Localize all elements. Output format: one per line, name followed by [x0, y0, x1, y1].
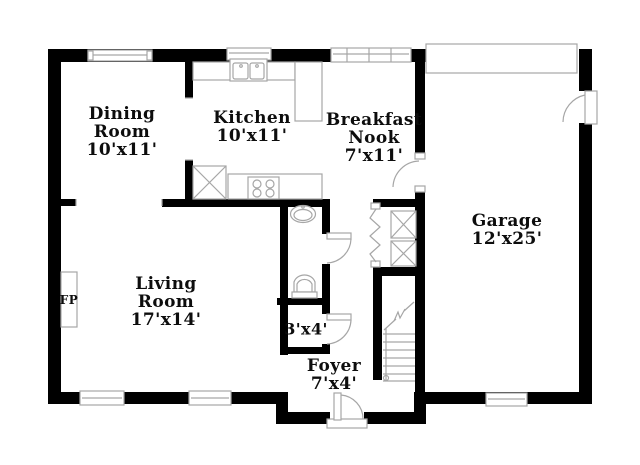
dining-window-icon [88, 50, 152, 61]
room-name: Living Room [128, 275, 204, 311]
bifold-door-icon [370, 203, 380, 267]
room-dims: 7'x4' [289, 375, 379, 393]
room-name: Kitchen [197, 109, 307, 127]
room-label-foyer: Foyer 7'x4' [289, 357, 379, 393]
floor-plan: Dining Room 10'x11' Kitchen 10'x11' Brea… [0, 0, 640, 465]
bathroom-fixtures [291, 206, 318, 299]
room-label-kitchen: Kitchen 10'x11' [197, 109, 307, 145]
room-dims: 17'x14' [128, 311, 204, 329]
living-window-left-icon [80, 391, 124, 405]
bathroom-door-icon [327, 233, 351, 263]
kitchen-sink-icon [230, 59, 267, 81]
room-name: Garage [452, 212, 562, 230]
room-label-garage: Garage 12'x25' [452, 212, 562, 248]
kitchen-window-icon [227, 48, 271, 60]
garage-door-icon [426, 44, 577, 73]
staircase-icon [383, 302, 415, 381]
front-door-icon [327, 393, 367, 428]
garage-window-icon [486, 393, 527, 406]
stove-icon [248, 177, 279, 199]
room-dims: 12'x25' [452, 230, 562, 248]
breakfast-window-icon [331, 48, 411, 62]
room-dims: 10'x11' [197, 127, 307, 145]
room-label-living-room: Living Room 17'x14' [128, 275, 204, 329]
room-name: Foyer [289, 357, 379, 375]
pantry-icon [193, 166, 226, 199]
room-name: Dining Room [80, 105, 164, 141]
room-label-breakfast-nook: Breakfast Nook 7'x11' [324, 111, 424, 165]
room-label-closet: 3'x4' [276, 322, 336, 339]
fireplace-label: FP [60, 293, 79, 307]
room-name: Breakfast Nook [324, 111, 424, 147]
room-dims: 3'x4' [276, 322, 336, 339]
room-dims: 7'x11' [324, 147, 424, 165]
living-window-right-icon [189, 391, 231, 405]
toilet-icon [292, 275, 317, 298]
garage-side-door-icon [563, 91, 597, 124]
room-label-dining: Dining Room 10'x11' [80, 105, 164, 159]
bathroom-sink-icon [291, 206, 316, 223]
utility-units-icon [391, 211, 416, 266]
room-dims: 10'x11' [80, 141, 164, 159]
